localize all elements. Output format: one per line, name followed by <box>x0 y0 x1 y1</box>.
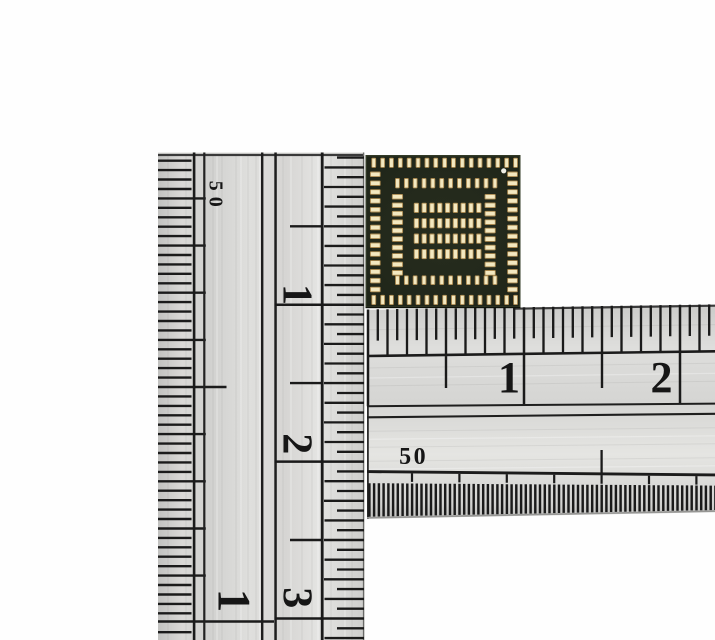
svg-text:1: 1 <box>498 353 520 402</box>
svg-text:3: 3 <box>274 587 320 608</box>
svg-text:2: 2 <box>274 433 320 454</box>
svg-text:50: 50 <box>205 181 227 213</box>
svg-text:1: 1 <box>274 284 320 305</box>
svg-text:2: 2 <box>651 353 673 402</box>
svg-text:50: 50 <box>399 444 428 470</box>
svg-text:1: 1 <box>208 589 260 613</box>
